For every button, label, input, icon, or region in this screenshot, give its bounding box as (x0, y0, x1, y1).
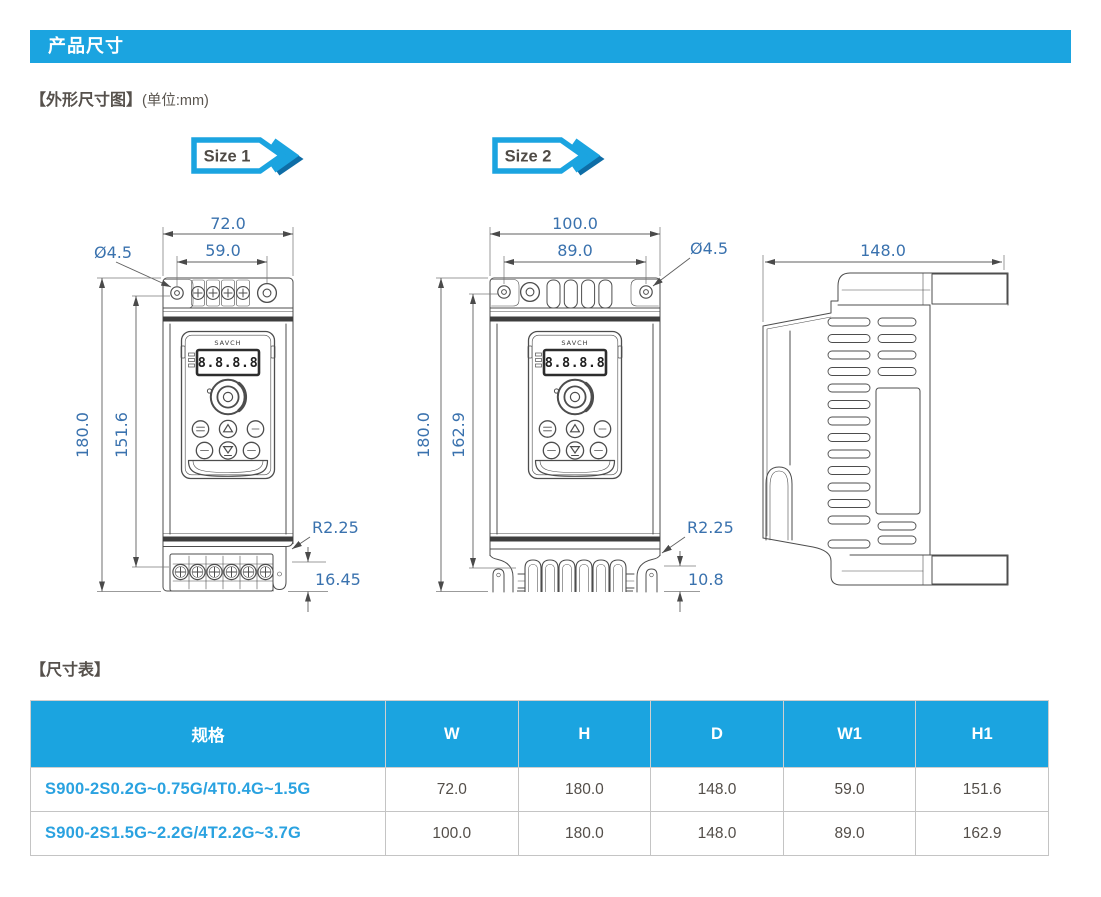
col-header-w1: W1 (783, 701, 916, 768)
size2-device-outline: SAVCH 8.8.8.8 (489, 278, 661, 593)
outline-drawing-heading: 【外形尺寸图】(单位:mm) (30, 86, 209, 110)
spec-cell: S900-2S1.5G~2.2G/4T2.2G~3.7G (31, 812, 386, 856)
dimension-table: 规格 W H D W1 H1 S900-2S0.2G~0.75G/4T0.4G~… (30, 700, 1049, 856)
size1-badge-label: Size 1 (204, 148, 251, 166)
w1-cell: 89.0 (783, 812, 916, 856)
col-header-h: H (518, 701, 651, 768)
size1-top-right-hole (258, 284, 277, 303)
size2-hole-span-dim: 89.0 (557, 241, 593, 260)
size2-top-left-hole (521, 283, 540, 302)
size1-dimensions: 72.0 59.0 Ø4.5 180.0 151.6 R2.25 (73, 214, 361, 612)
size1-foot-height-dim: 16.45 (315, 570, 361, 589)
size1-front-view: SAVCH 8.8.8.8 72.0 59.0 Ø4.5 180.0 (73, 214, 361, 612)
size1-radius-dim: R2.25 (312, 518, 359, 537)
col-header-d: D (651, 701, 784, 768)
size2-foot-height-dim: 10.8 (688, 570, 724, 589)
d-cell: 148.0 (651, 812, 784, 856)
h1-cell: 162.9 (916, 812, 1049, 856)
size2-mount-hole-topright (640, 286, 652, 298)
d-cell: 148.0 (651, 768, 784, 812)
size1-height-dim: 180.0 (73, 412, 92, 458)
table-row: S900-2S1.5G~2.2G/4T2.2G~3.7G 100.0 180.0… (31, 812, 1049, 856)
size1-hole-height-dim: 151.6 (112, 412, 131, 458)
size2-display-digits: 8.8.8.8 (545, 355, 605, 371)
side-label-area (876, 388, 920, 514)
unit-note: (单位:mm) (142, 93, 209, 109)
size2-hole-dia-dim: Ø4.5 (690, 239, 728, 258)
w1-cell: 59.0 (783, 768, 916, 812)
table-row: S900-2S0.2G~0.75G/4T0.4G~1.5G 72.0 180.0… (31, 768, 1049, 812)
h1-cell: 151.6 (916, 768, 1049, 812)
dimension-table-heading: 【尺寸表】 (30, 656, 110, 680)
size2-keypad (528, 332, 622, 479)
size1-device-outline: SAVCH 8.8.8.8 (163, 278, 295, 592)
product-dimensions-page: 产品尺寸 【外形尺寸图】(单位:mm) Size 1 Size 2 (0, 0, 1101, 897)
dimension-drawings: SAVCH 8.8.8.8 72.0 59.0 Ø4.5 180.0 (30, 200, 1070, 640)
side-device-outline (763, 273, 1008, 585)
size2-width-dim: 100.0 (552, 214, 598, 233)
size1-brand-logo: SAVCH (214, 339, 241, 347)
col-header-w: W (386, 701, 519, 768)
spec-cell: S900-2S0.2G~0.75G/4T0.4G~1.5G (31, 768, 386, 812)
size2-brand-logo: SAVCH (561, 339, 588, 347)
size1-badge: Size 1 (189, 135, 311, 181)
size1-display-digits: 8.8.8.8 (198, 355, 258, 371)
h-cell: 180.0 (518, 812, 651, 856)
outline-heading-text: 【外形尺寸图】 (30, 92, 142, 109)
side-heatsink-fins-top (932, 274, 1007, 304)
col-header-spec: 规格 (31, 701, 386, 768)
size2-front-view: SAVCH 8.8.8.8 100.0 89.0 Ø4.5 180.0 (414, 214, 734, 612)
size1-hole-dia-dim: Ø4.5 (94, 243, 132, 262)
size1-mount-hole-topleft (171, 287, 183, 299)
section-title-bar: 产品尺寸 (30, 30, 1071, 63)
table-header-row: 规格 W H D W1 H1 (31, 701, 1049, 768)
h-cell: 180.0 (518, 768, 651, 812)
size2-mount-hole-topleft (498, 286, 510, 298)
w-cell: 100.0 (386, 812, 519, 856)
size2-dimensions: 100.0 89.0 Ø4.5 180.0 162.9 R2.25 (414, 214, 734, 612)
size2-height-dim: 180.0 (414, 412, 433, 458)
side-dimensions: 148.0 (763, 241, 1004, 322)
size1-keypad (181, 332, 275, 479)
size1-width-dim: 72.0 (210, 214, 246, 233)
w-cell: 72.0 (386, 768, 519, 812)
side-view: 148.0 (763, 241, 1008, 585)
col-header-h1: H1 (916, 701, 1049, 768)
size2-radius-dim: R2.25 (687, 518, 734, 537)
size1-hole-span-dim: 59.0 (205, 241, 241, 260)
page-title: 产品尺寸 (48, 36, 124, 56)
size2-badge: Size 2 (490, 135, 612, 181)
size2-hole-height-dim: 162.9 (449, 412, 468, 458)
side-depth-dim: 148.0 (860, 241, 906, 260)
side-heatsink-fins-bottom (932, 556, 1007, 584)
size2-badge-label: Size 2 (505, 148, 552, 166)
